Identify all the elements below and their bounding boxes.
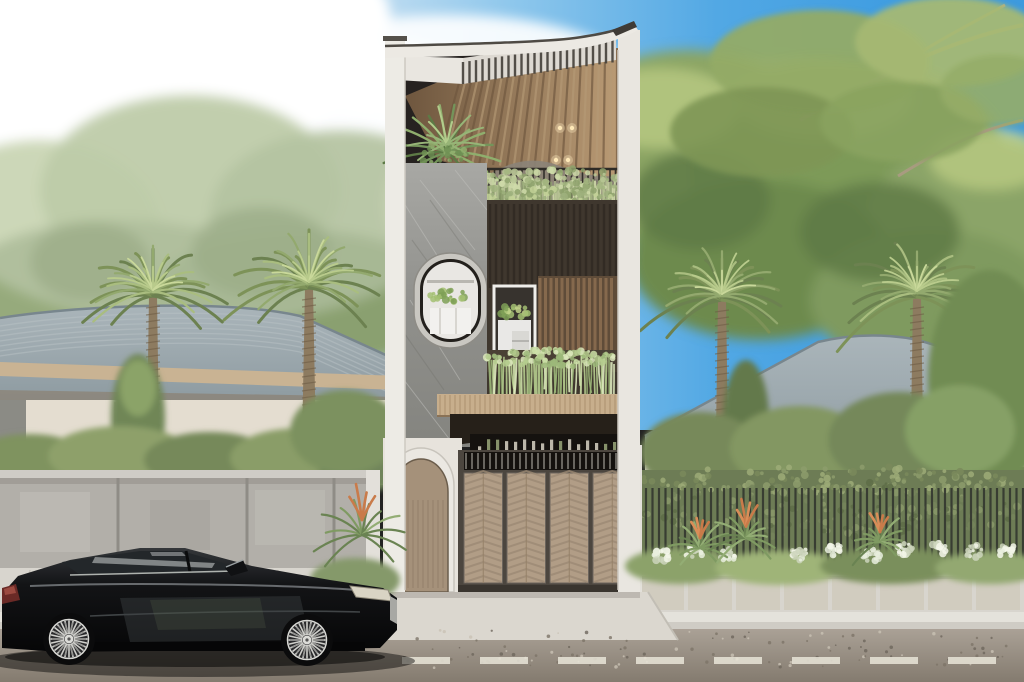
facade-right-pillar [618,30,640,592]
architectural-render [0,0,1024,682]
facade-left-pillar [385,40,405,595]
tall-house [383,21,642,595]
car-wheel [281,614,333,666]
driveway-apron [370,592,678,640]
floor2-window [494,286,535,354]
entry-gate[interactable] [458,445,642,592]
oval-window [414,253,487,348]
car-wheel [43,613,95,665]
scene-canvas [0,0,1024,682]
car-grille [390,596,397,624]
